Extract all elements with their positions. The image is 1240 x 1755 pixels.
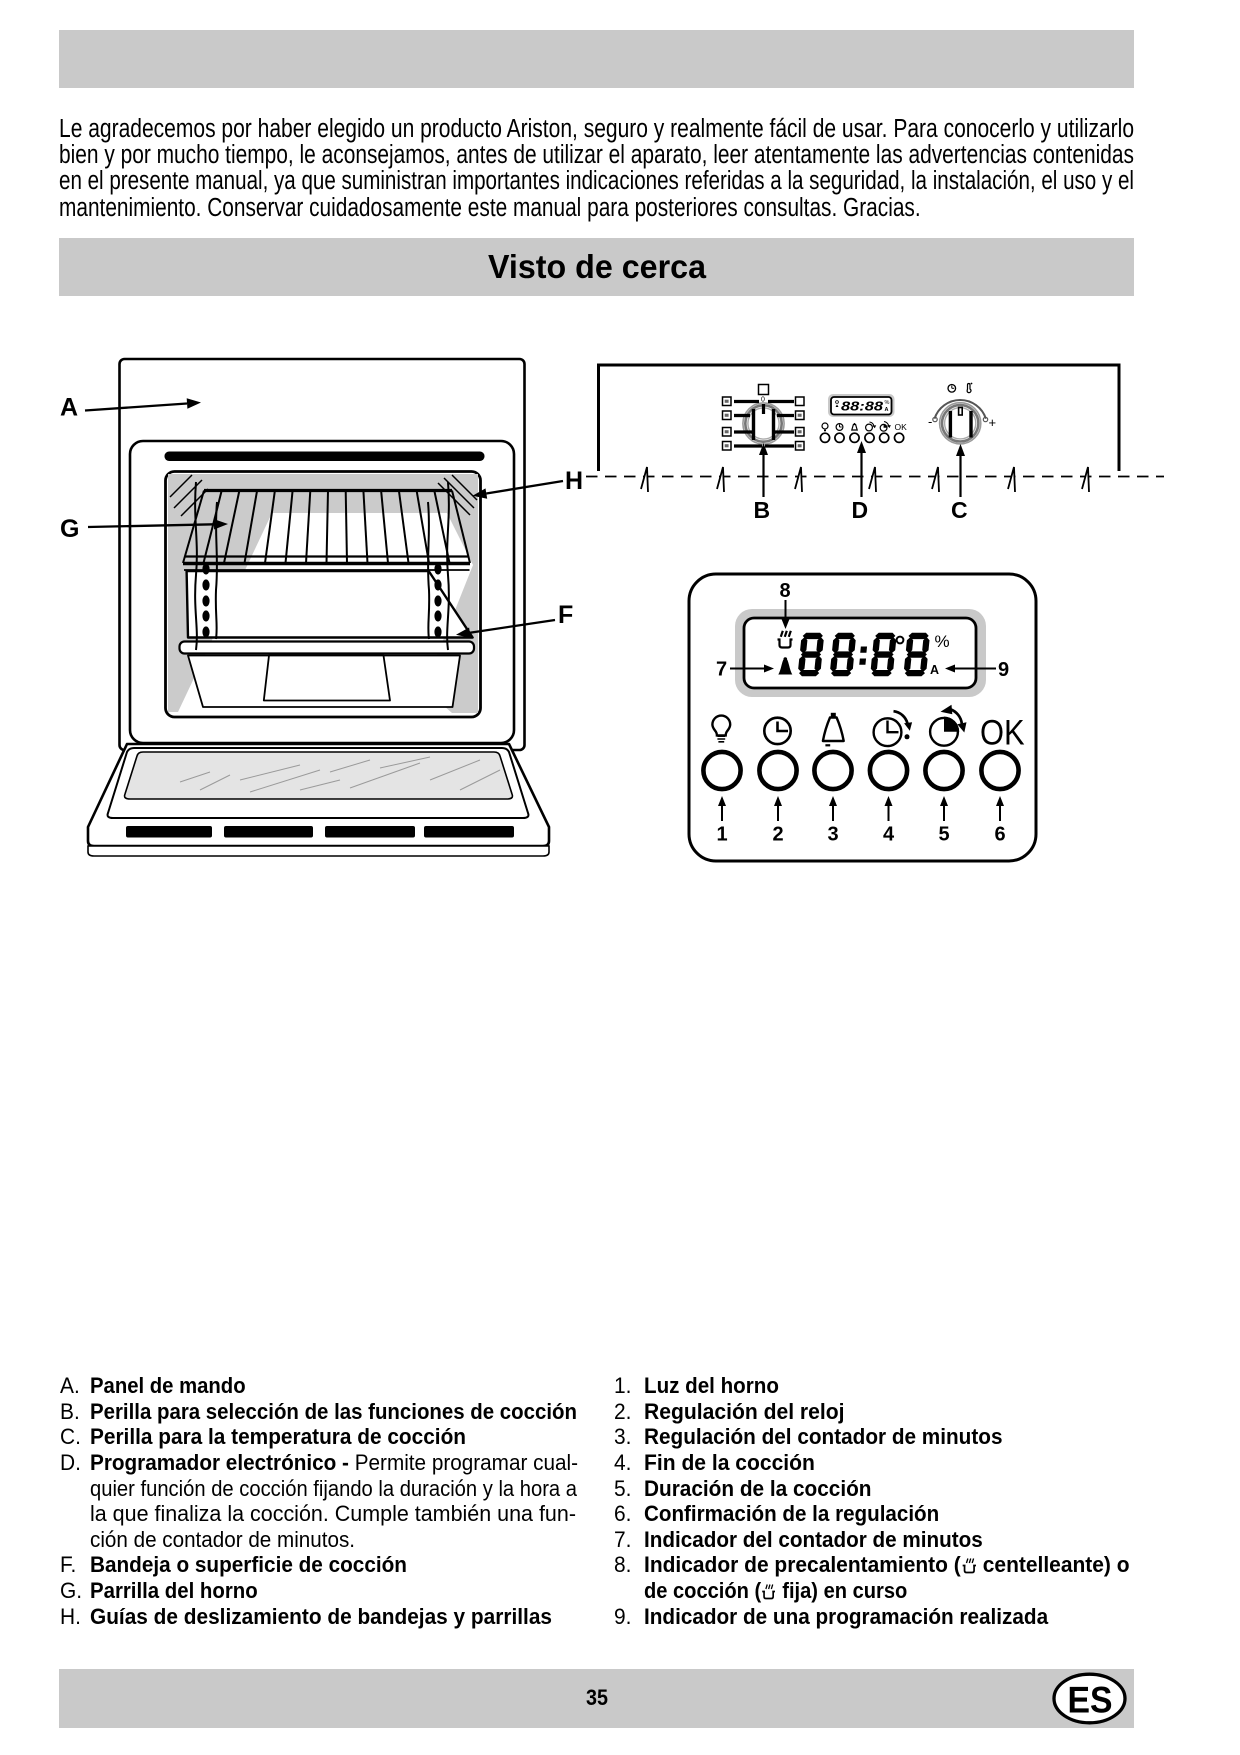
svg-text:A: A	[930, 663, 939, 677]
svg-text:3: 3	[827, 824, 838, 846]
svg-text:OK: OK	[980, 714, 1025, 753]
svg-text:D: D	[852, 497, 869, 523]
svg-text:C: C	[951, 497, 968, 523]
svg-text:5: 5	[938, 824, 949, 846]
svg-text:G: G	[60, 515, 79, 543]
svg-text:8: 8	[780, 580, 791, 602]
svg-text:%: %	[935, 632, 950, 651]
svg-text:H: H	[565, 467, 583, 495]
svg-text:-: -	[928, 414, 932, 429]
svg-text:A: A	[60, 394, 78, 422]
svg-text:A: A	[885, 407, 889, 413]
svg-text:9: 9	[998, 659, 1009, 681]
svg-text:88:88: 88:88	[841, 400, 883, 414]
svg-text:0: 0	[761, 397, 765, 404]
svg-text:1: 1	[716, 824, 727, 846]
svg-text:7: 7	[716, 659, 727, 681]
svg-text:6: 6	[994, 824, 1005, 846]
svg-text:2: 2	[772, 824, 783, 846]
svg-text:+: +	[989, 415, 997, 430]
svg-text:ES: ES	[1068, 1680, 1113, 1721]
svg-text:OK: OK	[895, 422, 908, 432]
svg-text:%: %	[885, 400, 890, 406]
svg-text:B: B	[754, 497, 771, 523]
svg-text:F: F	[558, 601, 573, 629]
svg-text:4: 4	[883, 824, 895, 846]
